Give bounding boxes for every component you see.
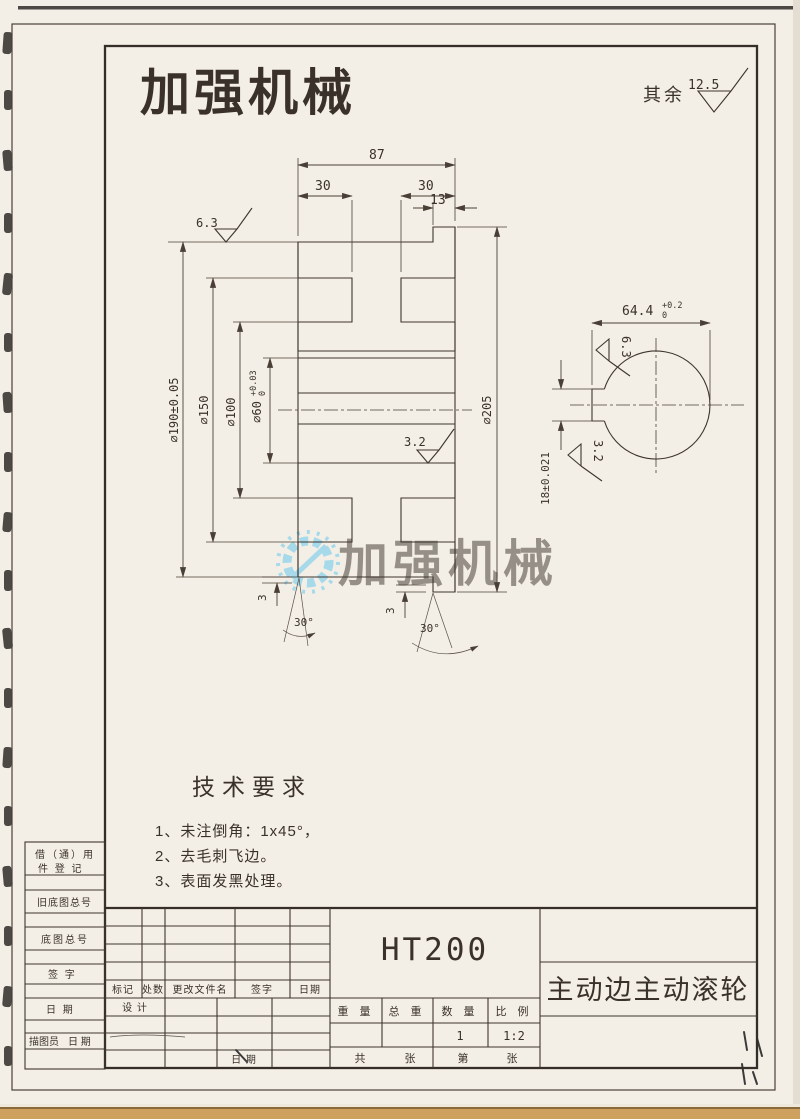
tech-req-title: 技术要求 [192,774,312,800]
left-col-date: 日 期 [46,1004,75,1016]
rev-header-file: 更改文件名 [173,983,228,996]
scale-value: 1:2 [503,1029,525,1043]
company-logo-text: 加强机械 [140,65,356,121]
quantity-value: 1 [456,1029,463,1043]
dim-dia-bore: ⌀60 [250,401,264,423]
tech-req-item: 1、未注倒角：1x45°， [155,823,320,840]
dim-keyway-depth: 64.4 [622,304,653,319]
header-scale: 比 例 [495,1004,532,1018]
dim-flange-width: 13 [430,193,446,208]
dim-chamfer-left: 3 [256,594,269,601]
dim-rough-key-bottom: 3.2 [591,440,605,462]
dim-angle-left: 30° [294,616,314,629]
drawing-canvas: 加强机械 其余 12.5 加强机械 87 30 [0,0,800,1119]
dim-dia-outer: ⌀190±0.05 [167,377,181,442]
rev-header-mark: 标记 [112,984,134,996]
left-col-master-no: 底图总号 [41,933,89,946]
sheet-no-suffix: 张 [507,1052,518,1065]
material-designation: HT200 [381,932,489,968]
dim-rough-bore: 3.2 [404,435,426,449]
dim-groove-left: 30 [315,179,331,194]
design-label: 设 计 [122,1001,148,1014]
surface-note-label: 其余 [643,85,685,105]
left-col-sign: 签 字 [48,968,77,981]
left-col-borrow1: 借（通）用 [35,849,95,861]
rev-header-date: 日期 [299,984,321,996]
dim-keyway-depth-tol-up: +0.2 [662,301,682,311]
sheet-total-prefix: 共 [355,1052,366,1065]
dim-chamfer-right: 3 [384,607,397,614]
tech-req-item: 2、去毛刺飞边。 [155,848,276,865]
watermark-text: 加强机械 [338,536,558,592]
dim-keyway-depth-tol-dn: 0 [662,311,667,321]
dim-keyway-width: 18±0.021 [539,452,552,505]
header-weight: 重 量 [337,1004,374,1018]
left-col-tracer-date: 日 期 [68,1036,91,1048]
dim-dia-hub: ⌀100 [224,398,238,427]
dim-dia-bore-tol-dn: 0 [258,391,268,396]
rev-header-count: 处数 [142,983,164,996]
header-quantity: 数 量 [441,1005,478,1018]
rev-header-sign: 签字 [251,983,273,996]
header-total-weight: 总 重 [388,1004,425,1018]
dim-groove-right: 30 [418,179,434,194]
sheet-no-prefix: 第 [458,1051,469,1065]
left-col-borrow2: 件 登 记 [38,862,84,875]
dim-rough-top: 6.3 [196,216,218,230]
dim-rough-key-top: 6.3 [619,336,633,358]
scanned-drawing-sheet: 加强机械 其余 12.5 加强机械 87 30 [0,0,800,1119]
left-col-old-master-no: 旧底图总号 [37,896,92,909]
dim-total-width: 87 [369,148,385,163]
part-name: 主动边主动滚轮 [547,975,750,1005]
dim-angle-right: 30° [420,622,440,635]
sheet-total-suffix: 张 [405,1052,416,1065]
tech-req-item: 3、表面发黑处理。 [155,873,292,890]
dim-dia-flange: ⌀205 [480,396,494,425]
dim-dia-groove: ⌀150 [197,396,211,425]
left-col-tracer: 描图员 [29,1035,59,1048]
